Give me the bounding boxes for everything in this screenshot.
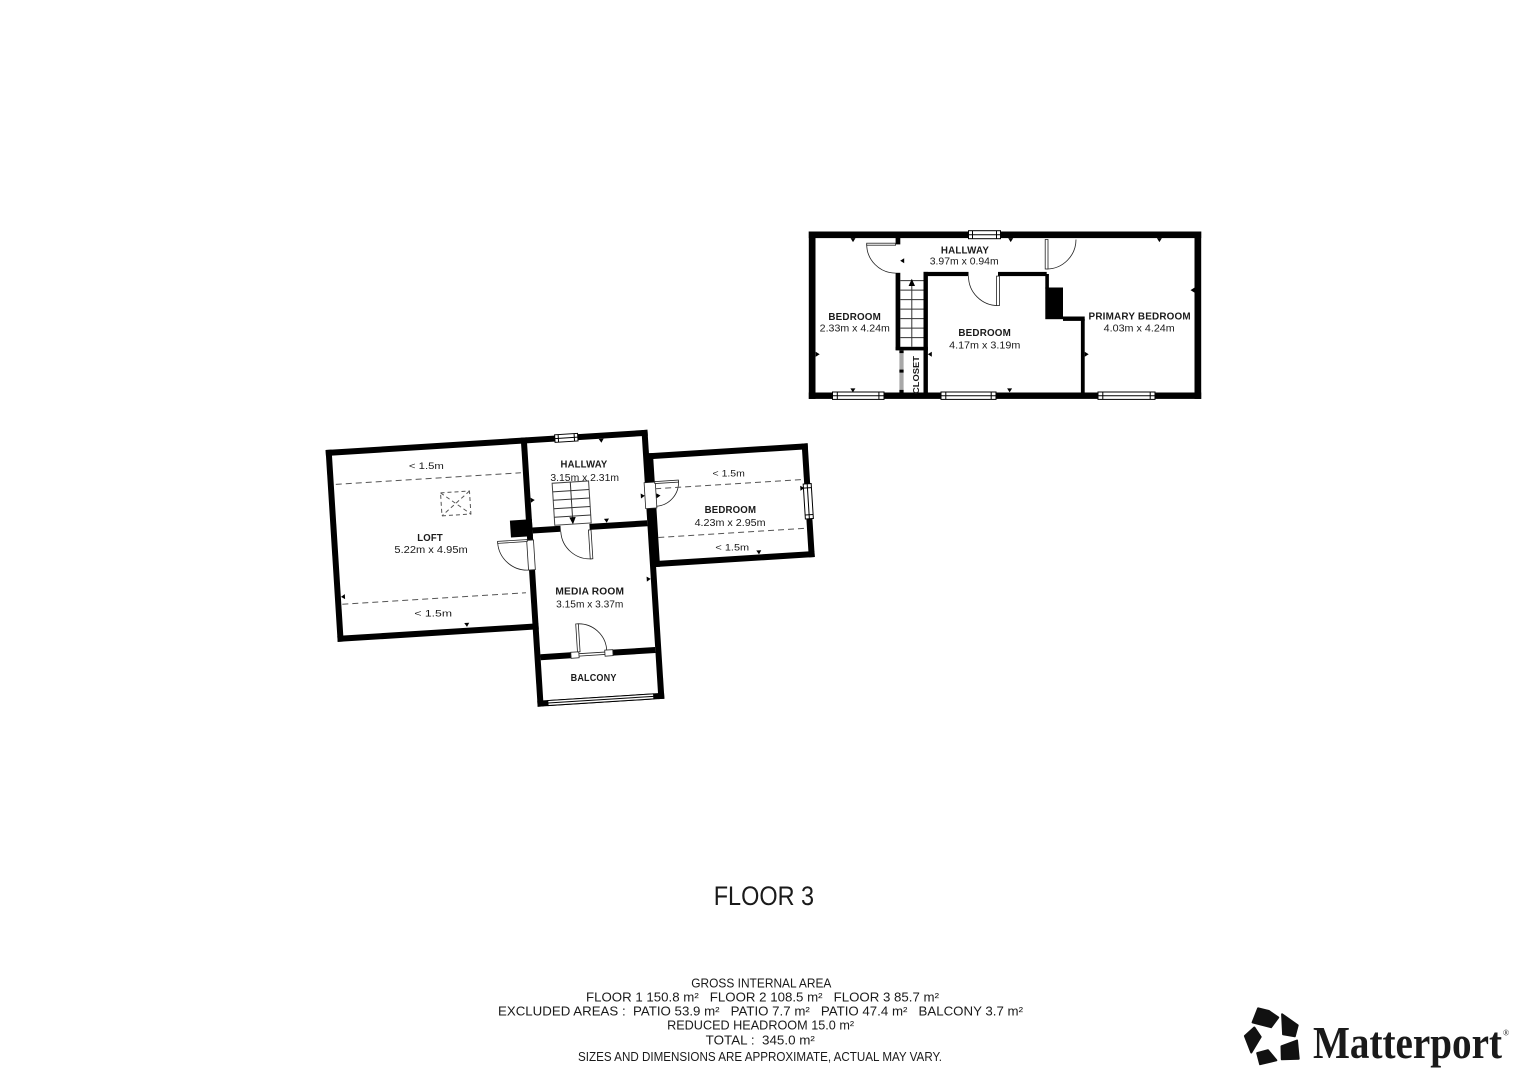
svg-text:FLOOR 1 150.8 m² FLOOR 2 108: FLOOR 1 150.8 m² FLOOR 2 108.5 m² FLOOR … [586,991,939,1005]
svg-text:HALLWAY: HALLWAY [941,245,989,257]
svg-text:CLOSET: CLOSET [912,356,921,394]
svg-text:FLOOR 3: FLOOR 3 [714,881,814,911]
svg-text:BEDROOM: BEDROOM [705,504,757,516]
svg-text:PRIMARY BEDROOM: PRIMARY BEDROOM [1089,311,1191,323]
svg-text:3.15m x 3.37m: 3.15m x 3.37m [556,600,623,611]
svg-text:4.03m x 4.24m: 4.03m x 4.24m [1104,324,1175,335]
svg-text:BEDROOM: BEDROOM [828,311,881,323]
svg-text:4.17m x 3.19m: 4.17m x 3.19m [949,340,1020,351]
svg-text:< 1.5m: < 1.5m [713,469,745,480]
svg-text:LOFT: LOFT [417,532,443,544]
svg-text:3.15m x 2.31m: 3.15m x 2.31m [550,473,619,484]
svg-text:TOTAL : 345.0 m²: TOTAL : 345.0 m² [706,1034,815,1048]
svg-text:HALLWAY: HALLWAY [561,459,608,471]
svg-text:BEDROOM: BEDROOM [958,327,1011,339]
svg-text:5.22m x 4.95m: 5.22m x 4.95m [394,545,467,556]
svg-text:Matterport: Matterport [1313,1017,1503,1068]
svg-text:REDUCED HEADROOM 15.0 m²: REDUCED HEADROOM 15.0 m² [667,1019,854,1033]
svg-text:MEDIA ROOM: MEDIA ROOM [555,586,624,598]
svg-text:< 1.5m: < 1.5m [715,543,749,554]
svg-text:EXCLUDED AREAS : PATIO 53.9 m: EXCLUDED AREAS : PATIO 53.9 m² PATIO 7.7… [498,1005,1023,1019]
svg-text:SIZES AND DIMENSIONS ARE APPRO: SIZES AND DIMENSIONS ARE APPROXIMATE, AC… [578,1050,942,1064]
svg-text:< 1.5m: < 1.5m [409,461,444,472]
svg-text:4.23m x 2.95m: 4.23m x 2.95m [695,518,766,529]
svg-text:2.33m x 4.24m: 2.33m x 4.24m [820,324,890,335]
svg-text:< 1.5m: < 1.5m [414,608,452,619]
svg-text:3.97m x 0.94m: 3.97m x 0.94m [930,257,999,268]
svg-text:®: ® [1503,1029,1509,1038]
svg-text:GROSS INTERNAL AREA: GROSS INTERNAL AREA [691,977,832,991]
svg-text:BALCONY: BALCONY [571,672,617,684]
